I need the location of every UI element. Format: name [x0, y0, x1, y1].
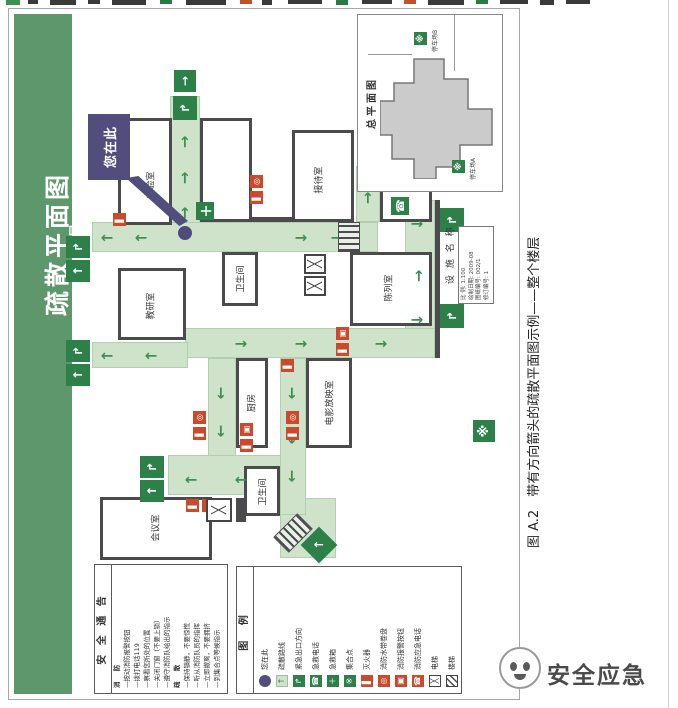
wall-segment	[252, 217, 292, 222]
legend-item: ◎消防水带卷盘	[376, 628, 392, 687]
safety-notice-title: 安 全 通 告	[95, 565, 112, 693]
overview-map-panel: 总平面图 ※ 停车场A ※ 停车场B	[357, 14, 503, 192]
screenshot-root: 疏散平面图 1层 安 全 通 告 消 防 —按动消防报警按钮 —拨打电话119 …	[0, 0, 678, 708]
page-edge-fragment	[428, 0, 464, 5]
legend-item: ↑疏散路线	[274, 642, 290, 687]
route-arrow-icon: ↑	[101, 232, 116, 245]
corridor	[208, 358, 236, 468]
notice-line: —到集合点等候指示	[212, 565, 222, 693]
route-arrow-icon: ↓	[235, 338, 250, 351]
route-arrow-icon: ↑	[145, 350, 160, 363]
rotated-document: 疏散平面图 1层 安 全 通 告 消 防 —按动消防报警按钮 —拨打电话119 …	[0, 0, 678, 708]
room-label: 接待室	[312, 166, 325, 193]
legend-item: ╳电梯	[427, 656, 443, 687]
page-edge-fragment	[240, 0, 252, 4]
route-arrow-icon: ↓	[295, 232, 310, 245]
exit-sign-icon: ↱	[440, 304, 464, 328]
notice-line: —保持镇静，不要惊慌	[182, 565, 192, 693]
legend-item: 您在此	[257, 649, 273, 687]
exit-sign-icon: ↱	[66, 236, 90, 258]
assembly-point-sign-icon: ※	[473, 420, 495, 442]
first-aid-phone-icon: ☎	[310, 675, 322, 687]
elevator-shaft-icon: ╳	[206, 498, 232, 522]
overview-title: 总平面图	[363, 15, 378, 191]
title-banner: 疏散平面图 1层	[14, 14, 72, 694]
fire-hose-reel-sign-icon: ◎	[193, 411, 206, 424]
you-are-here-dot	[178, 226, 192, 240]
first-aid-kit-sign-icon: ＋	[196, 202, 214, 220]
assembly-point-icon: ※	[344, 675, 356, 687]
page-edge-fragment	[540, 0, 554, 5]
legend-item: ※集合点	[342, 649, 358, 687]
figure-caption: 图 A.2 带有方向箭头的疏散平面图示例——整个楼层	[523, 237, 542, 548]
fire-alarm-button-sign-icon: ▣	[240, 423, 253, 436]
notice-line: —关闭门窗（不要上锁）	[152, 565, 162, 693]
room-label: 卫生间	[256, 478, 269, 505]
page-edge-fragment	[500, 0, 528, 4]
route-arrow-icon: →	[412, 270, 427, 283]
fire-alarm-button-icon: ▣	[395, 675, 407, 687]
route-arrow-icon: ↓	[411, 314, 426, 327]
emergency-exit-sign-icon: ↱	[293, 675, 305, 687]
page-edge-fragment	[288, 0, 322, 4]
parking-boundary-line	[454, 15, 455, 71]
notice-line: —听从消防队员的指挥	[192, 565, 202, 693]
watermark-logo-icon	[499, 647, 541, 689]
route-arrow-icon: ↓	[295, 338, 310, 351]
facility-name-label: 设 施 名 称	[443, 225, 456, 284]
logo-mouth	[514, 674, 526, 680]
route-arrow-icon: →	[178, 172, 193, 185]
room-label: 电影放映室	[323, 380, 336, 425]
parking-b-label: 停车场B	[430, 30, 439, 52]
page-edge-fragment	[262, 0, 272, 5]
route-arrow-icon: ↑	[101, 350, 116, 363]
fire-extinguisher-sign-icon: ▌	[250, 191, 263, 204]
watermark-text: 安全应急	[547, 656, 647, 690]
exit-sign-icon: ↱	[173, 96, 197, 120]
fire-alarm-button-sign-icon: ▣	[336, 327, 349, 340]
route-arrow-icon: →	[178, 136, 193, 149]
parking-boundary-line	[368, 54, 412, 55]
fire-extinguisher-sign-icon: ▌	[193, 427, 206, 440]
page-edge-fragment	[160, 0, 172, 4]
notice-line: —立即撤离，不要拥挤	[202, 565, 212, 693]
room-label: 卫生间	[234, 265, 247, 292]
route-arrow-icon: →	[361, 192, 376, 205]
fire-extinguisher-sign-icon: ▌	[186, 499, 199, 512]
fire-extinguisher-sign-icon: ▌	[286, 427, 299, 440]
stairs-icon	[446, 675, 458, 687]
assembly-point-sign-icon: ※	[414, 32, 427, 45]
logo-eye	[523, 662, 530, 671]
notice-line: 疏 散	[172, 565, 182, 693]
safety-notice-panel: 安 全 通 告 消 防 —按动消防报警按钮 —拨打电话119 —察看您所处的位置…	[94, 564, 228, 694]
elevator-shaft-icon: ╳	[304, 276, 326, 296]
fire-extinguisher-sign-icon: ▌	[240, 439, 253, 452]
wall-segment	[236, 498, 246, 522]
route-arrow-icon: ←	[214, 425, 229, 438]
legend-item: ↱紧急出口方向	[291, 628, 307, 687]
legend-item: ☎急救电话	[308, 642, 324, 687]
page-edge-fragment	[112, 0, 146, 5]
page-edge-fragment	[6, 0, 20, 5]
fire-extinguisher-sign-icon: ▌	[281, 359, 294, 372]
notice-line: 消 防	[112, 565, 122, 693]
legend-panel: 图 例 您在此 ↑疏散路线 ↱紧急出口方向 ☎急救电话 ＋急救箱 ※集合点 ▌灭…	[236, 566, 462, 694]
notice-line: —拨打电话119	[132, 565, 142, 693]
notice-line: —察看您所处的位置	[142, 565, 152, 693]
elevator-icon: ╳	[429, 675, 441, 687]
document-edge-line	[668, 0, 669, 708]
legend-item: ▌灭火器	[359, 649, 375, 687]
notice-line: —按动消防报警按钮	[122, 565, 132, 693]
route-arrow-icon: ↑	[135, 232, 150, 245]
room-label: 教研室	[144, 292, 157, 319]
page-edge-fragment	[566, 0, 590, 4]
you-are-here-callout: 您在此	[88, 114, 130, 180]
page-edge-fragment	[28, 0, 38, 4]
first-aid-kit-icon: ＋	[327, 675, 339, 687]
legend-item: ▣消防报警按钮	[393, 628, 409, 687]
page-edge-fragment	[362, 0, 392, 4]
parking-a-label: 停车场A	[468, 158, 477, 180]
assembly-point-sign-icon: ※	[452, 160, 465, 173]
exit-sign-icon: ↱	[140, 456, 164, 478]
route-arrow-icon: ↑	[235, 474, 250, 487]
legend-item: ＋急救箱	[325, 649, 341, 687]
fire-hose-reel-icon: ◎	[378, 675, 390, 687]
route-arrow-icon: ←	[285, 470, 300, 483]
page-edge-fragment	[186, 0, 226, 5]
room-label: 厨房	[245, 394, 258, 412]
legend-item: ☎消防应急电话	[410, 628, 426, 687]
fire-extinguisher-icon: ▌	[361, 675, 373, 687]
page-edge-fragment	[404, 0, 416, 4]
page-edge-fragment	[336, 0, 348, 5]
first-aid-phone-sign-icon: ☎	[391, 197, 409, 215]
exit-sign-icon: ↱	[66, 340, 90, 362]
exit-arrow-icon: ↑	[140, 480, 164, 502]
evacuation-route-arrow-icon: ↑	[276, 675, 288, 687]
route-arrow-icon: ←	[285, 387, 300, 400]
you-are-here-dot-icon	[259, 675, 271, 687]
exit-arrow-icon: ↑	[66, 260, 90, 282]
exit-arrow-icon: ↑	[66, 364, 90, 386]
fire-extinguisher-sign-icon: ▌	[113, 213, 126, 226]
logo-eye	[510, 662, 517, 671]
facility-info-box: 比 例: 1:100 绘制日期: 2009-08 图纸编号: 002/1 修订编…	[458, 226, 494, 304]
page-edge-fragment	[50, 0, 76, 5]
fire-emergency-phone-icon: ☎	[412, 675, 424, 687]
legend-title: 图 例	[237, 567, 254, 693]
fire-extinguisher-sign-icon: ▌	[336, 343, 349, 356]
legend-item: 楼梯	[444, 656, 460, 687]
elevator-shaft-icon: ╳	[304, 254, 326, 274]
notice-line: —遵守消防队给出的指示	[162, 565, 172, 693]
page-edge-fragment	[476, 0, 488, 4]
route-arrow-icon: ↓	[375, 338, 390, 351]
stairs-hatch	[338, 222, 360, 252]
route-arrow-icon: ↑	[185, 474, 200, 487]
route-arrow-icon: ↓	[411, 218, 426, 231]
fire-hose-reel-sign-icon: ◎	[250, 175, 263, 188]
room-label: 会议室	[149, 514, 162, 541]
fire-hose-reel-sign-icon: ◎	[286, 411, 299, 424]
page-edge-fragment	[88, 0, 100, 4]
exit-arrow-icon: →	[174, 70, 196, 92]
route-arrow-icon: ←	[214, 387, 229, 400]
room-label: 陈列室	[382, 274, 395, 301]
